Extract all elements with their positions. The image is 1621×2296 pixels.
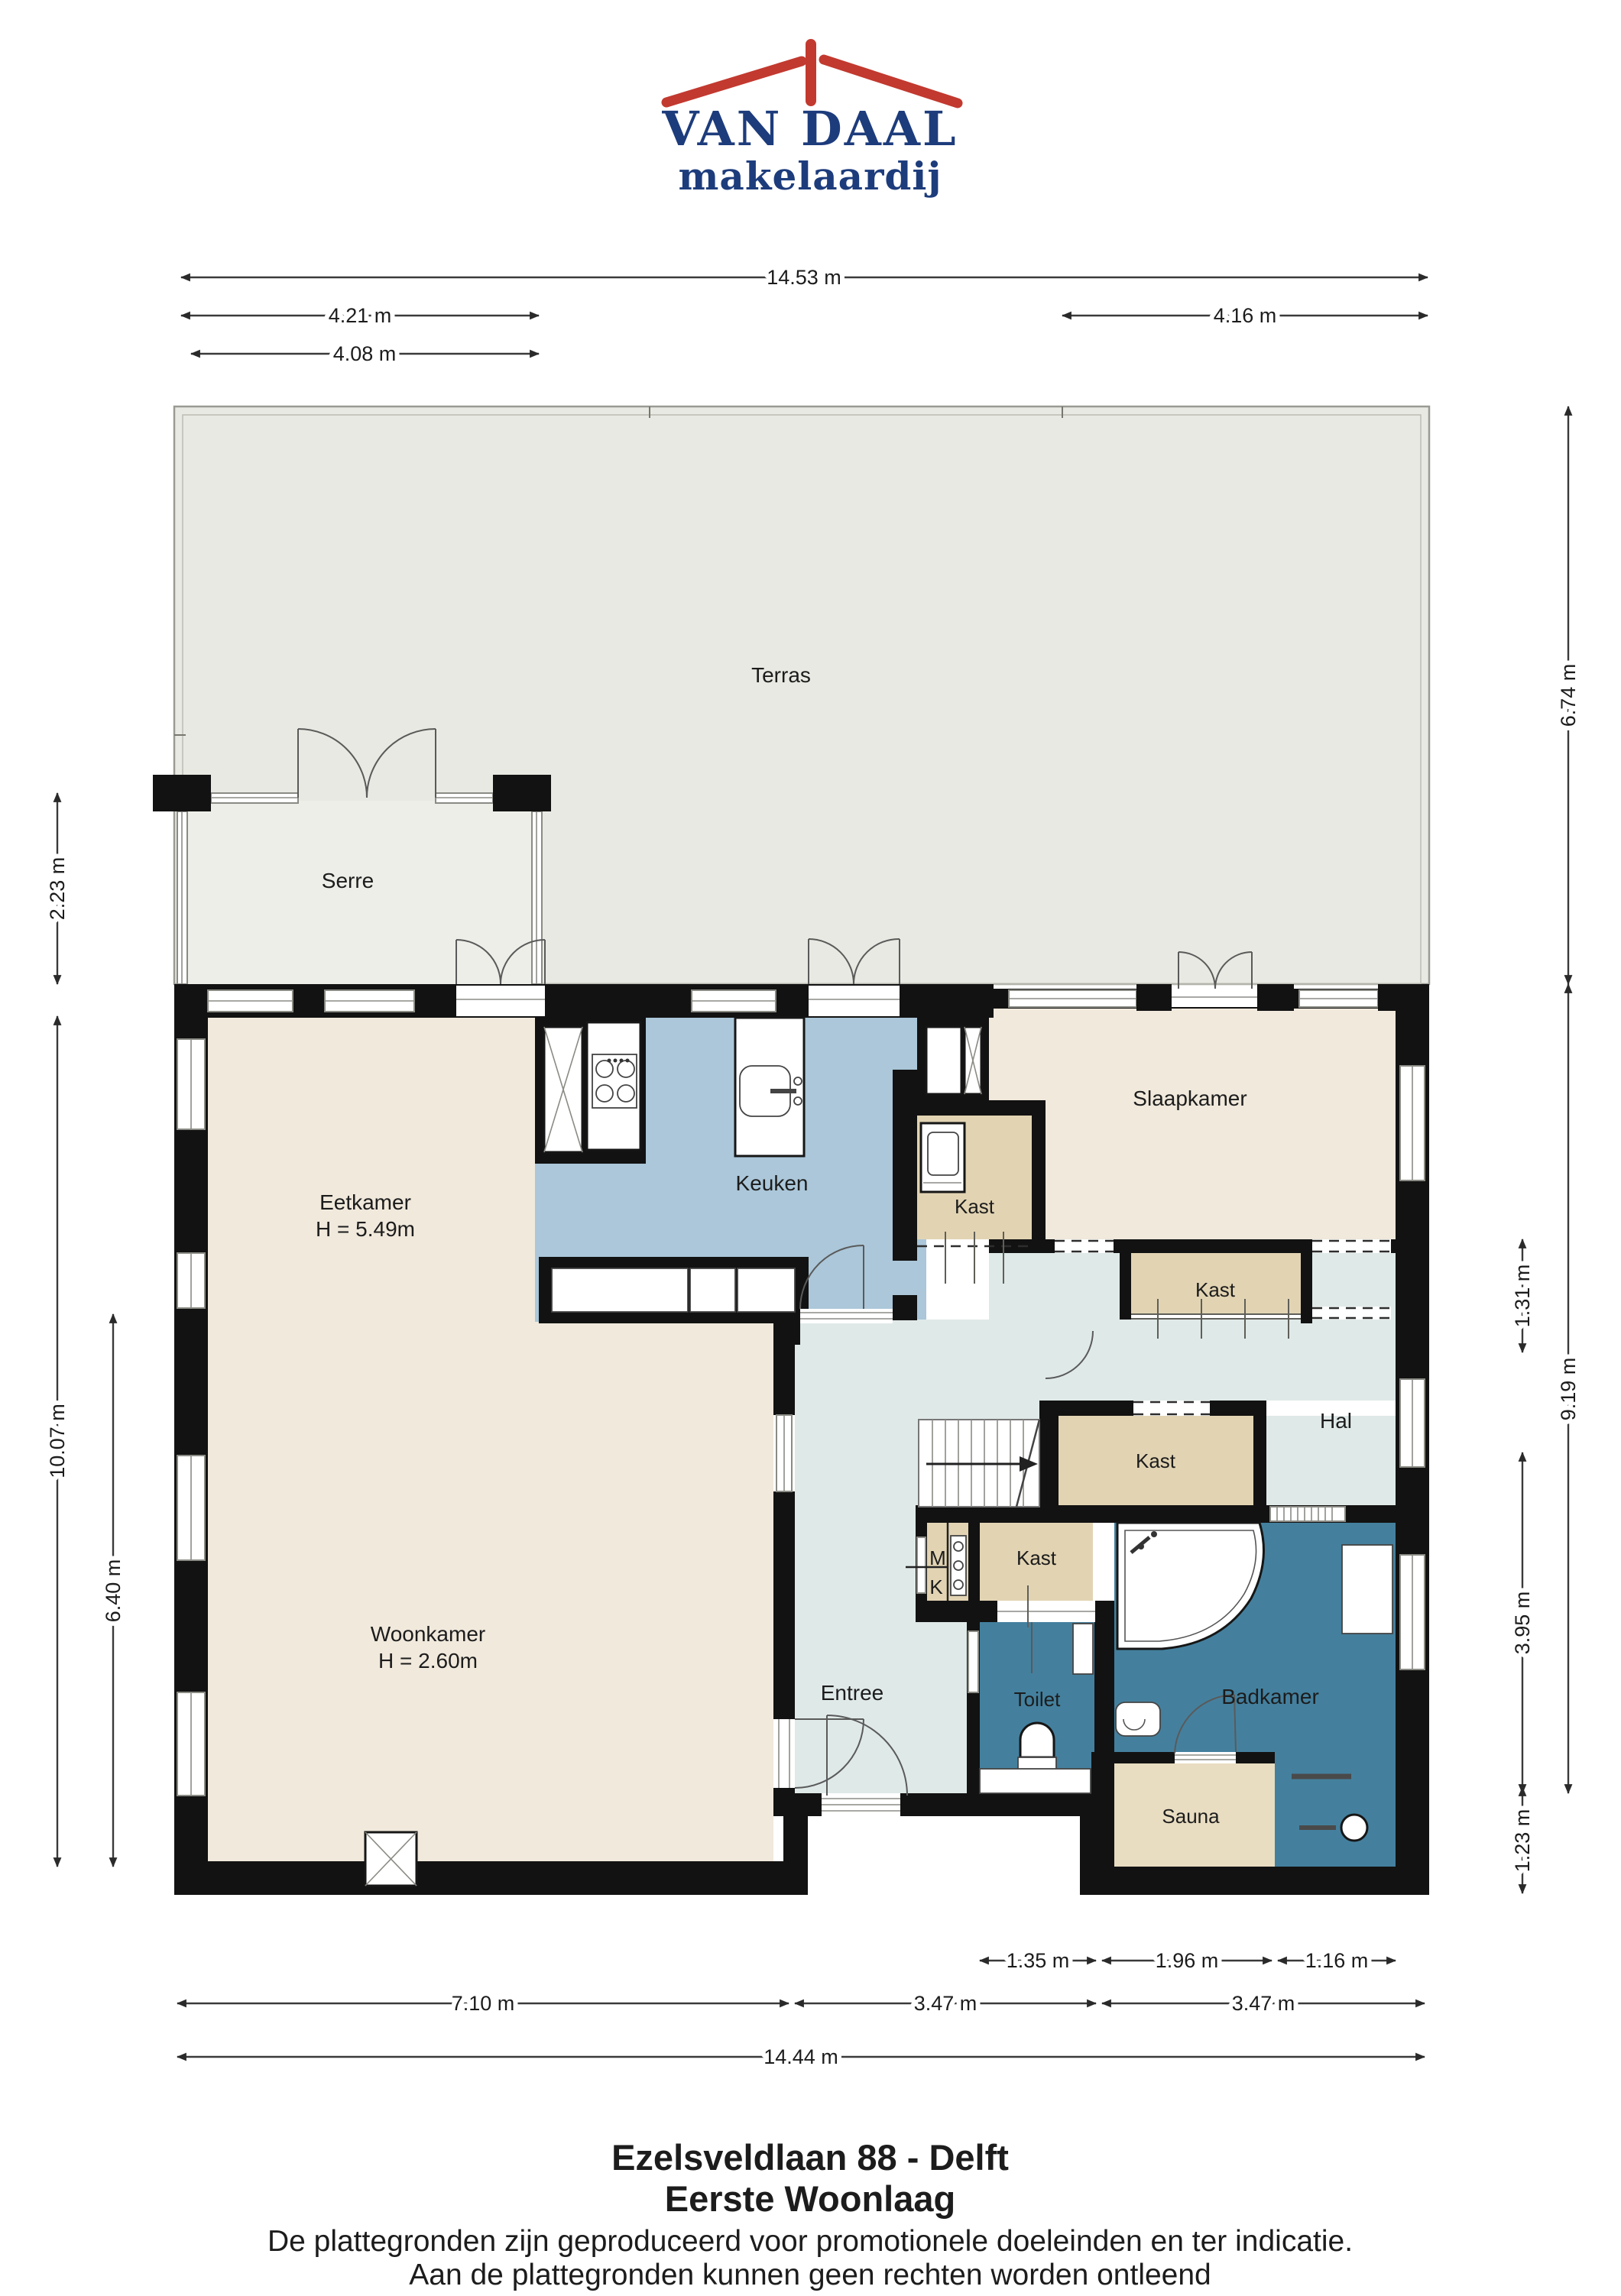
dimension-label: 6.74 m [1557,664,1580,727]
meter-cupboard-door [917,1537,926,1593]
bathroom-shower-floor [1275,1752,1396,1867]
bathroom-vanity [1342,1545,1392,1634]
woonkamer-height-label: H = 2.60m [378,1649,478,1673]
logo-roof-left-icon [666,61,802,102]
hal-label: Hal [1320,1409,1352,1433]
dimension-terras-depth: 6.74 m [1557,406,1580,984]
serre-post-left [153,775,211,811]
dimension-serre-width: 4.21 m [181,304,539,327]
keuken-label: Keuken [736,1171,809,1195]
kast-small-label: Kast [1016,1546,1057,1569]
floor-subtitle: Eerste Woonlaag [665,2178,955,2219]
dimension-bathroom-width: 3.47 m [1102,1992,1425,2015]
dimension-sauna-depth: 1.23 m [1511,1787,1534,1893]
dimension-total-width-bottom: 14.44 m [177,2045,1425,2068]
slaapkamer-label: Slaapkamer [1133,1086,1247,1110]
dimensions-right: 6.74 m 9.19 m 1.31 m 3.95 m 1.23 m [1511,406,1580,1893]
dimension-label: 3.47 m [1232,1992,1295,2015]
floorplan-page: VAN DAAL makelaardij 14.53 m 4.21 m 4.16… [0,0,1621,2292]
dimension-house-depth: 10.07 m [46,1016,69,1867]
entree-lobby-floor [916,1622,967,1793]
meter-k-label: K [929,1575,943,1598]
dimension-entree-width: 3.47 m [795,1992,1096,2015]
dimensions-bottom: 1.35 m 1.96 m 1.16 m 7.10 m 3.47 m 3.47 … [177,1949,1425,2068]
sauna-label: Sauna [1162,1805,1220,1828]
passage-left-floor [989,1253,1120,1320]
serre-post-right [493,775,551,811]
dimension-label: 1.23 m [1511,1809,1534,1873]
dimension-label: 3.95 m [1511,1592,1534,1655]
terras-label: Terras [751,663,811,687]
dimension-label: 9.19 m [1557,1358,1580,1421]
dimension-label: 14.53 m [767,266,841,289]
dimension-right-section-depth: 9.19 m [1557,984,1580,1793]
logo-roof-right-icon [824,60,958,103]
dimension-closet-depth: 1.31 m [1511,1239,1534,1352]
eetkamer-height-label: H = 5.49m [316,1217,415,1241]
meter-m-label: M [929,1546,946,1569]
dimension-serre-inner-width: 4.08 m [191,342,539,365]
kast-kitchen-label: Kast [955,1195,995,1218]
dimension-label: 7.10 m [452,1992,515,2015]
dimension-label: 1.35 m [1007,1949,1070,1972]
chimney [365,1832,417,1886]
dimension-toilet-width: 1.35 m [980,1949,1096,1972]
dimension-label: 1.96 m [1156,1949,1219,1972]
dimension-label: 6.40 m [102,1559,125,1623]
dimension-label: 3.47 m [914,1992,977,2015]
dimension-label: 4.21 m [329,304,392,327]
dimension-label: 1.16 m [1305,1949,1369,1972]
dimension-label: 14.44 m [763,2045,838,2068]
dimensions-top: 14.53 m 4.21 m 4.16 m 4.08 m [181,266,1428,365]
woonkamer-label: Woonkamer [371,1622,485,1646]
stove [587,1022,640,1150]
dimension-label: 2.23 m [46,857,69,921]
dimension-total-width-top: 14.53 m [181,266,1428,289]
dimension-bathroom-depth: 3.95 m [1511,1452,1534,1793]
kitchen-sink-island [735,1018,804,1156]
bathroom-sink [1116,1702,1160,1736]
toilet-label: Toilet [1014,1688,1061,1711]
dimension-serre-depth: 2.23 m [46,793,69,984]
kitchen-counter-row [552,1268,795,1312]
corridor-floor [795,1320,1396,1401]
logo-name: VAN DAAL [661,101,958,157]
badkamer-label: Badkamer [1221,1685,1319,1708]
serre-label: Serre [322,869,374,892]
bedroom-floor [989,1009,1396,1239]
footer: Ezelsveldlaan 88 - Delft Eerste Woonlaag… [267,2137,1353,2291]
eetkamer-label: Eetkamer [319,1190,411,1214]
hal-bathroom-door [1270,1507,1345,1521]
entree-floor [795,1401,916,1793]
dimensions-left: 2.23 m 10.07 m 6.40 m [46,793,125,1867]
kitchen-pantry-cabinet [544,1027,582,1152]
fridge-cabinet [926,1027,981,1094]
address-title: Ezelsveldlaan 88 - Delft [611,2137,1009,2178]
dimension-label: 1.31 m [1511,1265,1534,1328]
dimension-sauna-width: 1.96 m [1102,1949,1272,1972]
dimension-livingroom-depth: 6.40 m [102,1314,125,1867]
disclaimer-line1: De plattegronden zijn geproduceerd voor … [267,2225,1353,2258]
entree-label: Entree [821,1681,884,1705]
kast-bedroom-label: Kast [1195,1278,1236,1301]
serre-floor [186,801,533,984]
staircase [919,1420,1039,1507]
dimension-livingroom-width: 7.10 m [177,1992,789,2015]
kast-center-label: Kast [1136,1449,1176,1472]
logo-tagline: makelaardij [679,154,942,199]
dimension-label: 4.08 m [333,342,397,365]
dimension-label: 10.07 m [46,1404,69,1478]
washing-machine [921,1123,964,1192]
dimension-label: 4.16 m [1214,304,1277,327]
dimension-shower-width: 1.16 m [1278,1949,1396,1972]
dimension-right-section-width: 4.16 m [1062,304,1428,327]
toilet-lobby-door [968,1631,978,1692]
agency-logo: VAN DAAL makelaardij [661,44,958,199]
floorplan-drawing: VAN DAAL makelaardij 14.53 m 4.21 m 4.16… [0,0,1621,2292]
disclaimer-line2: Aan de plattegronden kunnen geen rechten… [409,2259,1211,2291]
